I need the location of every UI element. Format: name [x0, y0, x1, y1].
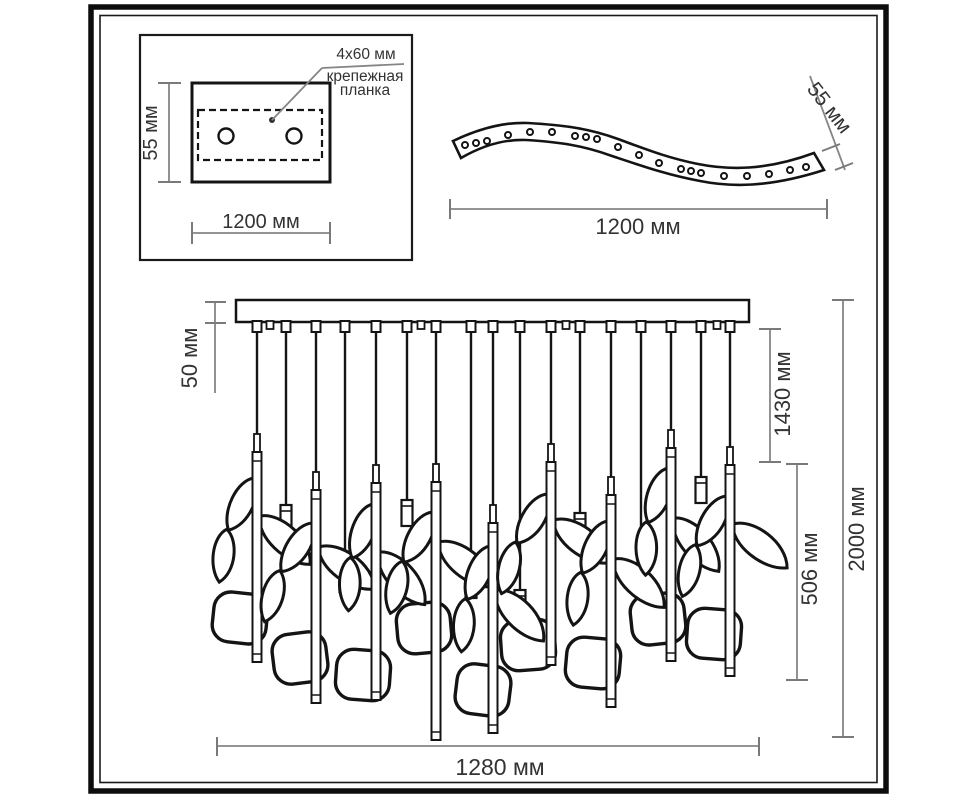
- mounting-plate-outline: [192, 83, 330, 182]
- bar-fixing-nub: [418, 321, 425, 329]
- cable-weight: [402, 500, 413, 526]
- cable-connector: [253, 321, 262, 332]
- light-tube: [312, 490, 321, 703]
- strip-hole: [572, 133, 578, 139]
- cable-connector: [547, 321, 556, 332]
- cable-weight: [696, 477, 707, 503]
- tube-collar: [373, 465, 379, 483]
- cable-connector: [372, 321, 381, 332]
- strip-hole: [698, 170, 704, 176]
- cable-connector: [667, 321, 676, 332]
- total-height-dimension-label: 2000 мм: [844, 486, 869, 571]
- light-tube: [432, 482, 441, 740]
- light-tube: [489, 523, 498, 733]
- cable-connector: [607, 321, 616, 332]
- rounded-leaf-element: [453, 662, 513, 718]
- tube-collar: [313, 472, 319, 490]
- tube-collar: [490, 505, 496, 523]
- cable-connector: [489, 321, 498, 332]
- tube-collar: [548, 444, 554, 462]
- cable-connector: [432, 321, 441, 332]
- tube-collar: [727, 447, 733, 465]
- canopy-thickness-dimension-label: 50 мм: [177, 328, 202, 389]
- upper-drop-dimension-label: 1430 мм: [770, 351, 795, 436]
- rounded-leaf-element: [334, 648, 391, 702]
- strip-hole: [636, 152, 642, 158]
- strip-hole: [721, 173, 727, 179]
- strip-hole: [803, 164, 809, 170]
- bar-fixing-nub: [714, 321, 721, 329]
- cable-connector: [341, 321, 350, 332]
- tube-collar: [668, 430, 674, 448]
- cable-connector: [697, 321, 706, 332]
- strip-length-dimension-label: 1200 мм: [595, 214, 680, 239]
- bar-fixing-nub: [267, 321, 274, 329]
- light-tube: [726, 465, 735, 676]
- strip-hole: [527, 129, 533, 135]
- light-tube: [372, 483, 381, 700]
- light-tube: [667, 448, 676, 661]
- lamp-section-dimension-label: 506 мм: [797, 532, 822, 605]
- strip-hole: [688, 168, 694, 174]
- tube-collar: [433, 464, 439, 482]
- light-fixture-dimension-drawing: 4x60 мм крепежная планка 55 мм 1200 мм 5…: [0, 0, 978, 800]
- bar-fixing-nub: [563, 321, 570, 329]
- strip-hole: [678, 166, 684, 172]
- ceiling-bar: [236, 300, 749, 322]
- strip-hole: [484, 138, 490, 144]
- rounded-leaf-element: [395, 601, 453, 656]
- tube-collar: [608, 477, 614, 495]
- cable-connector: [403, 321, 412, 332]
- cable-connector: [516, 321, 525, 332]
- plate-height-dimension-label: 55 мм: [140, 105, 162, 160]
- strip-hole: [787, 167, 793, 173]
- strip-hole: [583, 134, 589, 140]
- drawing-page: 4x60 мм крепежная планка 55 мм 1200 мм 5…: [0, 0, 978, 800]
- total-width-dimension-label: 1280 мм: [455, 754, 544, 780]
- strip-hole: [473, 140, 479, 146]
- cable-connector: [467, 321, 476, 332]
- cable-connector: [312, 321, 321, 332]
- cable-connector: [576, 321, 585, 332]
- light-tube: [607, 495, 616, 707]
- strip-hole: [744, 173, 750, 179]
- cable-connector: [637, 321, 646, 332]
- strip-hole: [766, 171, 772, 177]
- plate-width-dimension-label: 1200 мм: [222, 211, 300, 233]
- callout-name-line2: планка: [340, 82, 391, 99]
- light-tube: [547, 462, 556, 665]
- strip-hole: [462, 142, 468, 148]
- strip-hole: [615, 144, 621, 150]
- strip-hole: [505, 132, 511, 138]
- strip-hole: [656, 160, 662, 166]
- light-tube: [253, 452, 262, 662]
- strip-hole: [594, 136, 600, 142]
- tube-collar: [254, 434, 260, 452]
- cable-connector: [282, 321, 291, 332]
- mounting-plate-inset: 4x60 мм крепежная планка 55 мм 1200 мм: [140, 35, 412, 260]
- cable-connector: [726, 321, 735, 332]
- callout-size-label: 4x60 мм: [336, 46, 395, 63]
- strip-hole: [549, 129, 555, 135]
